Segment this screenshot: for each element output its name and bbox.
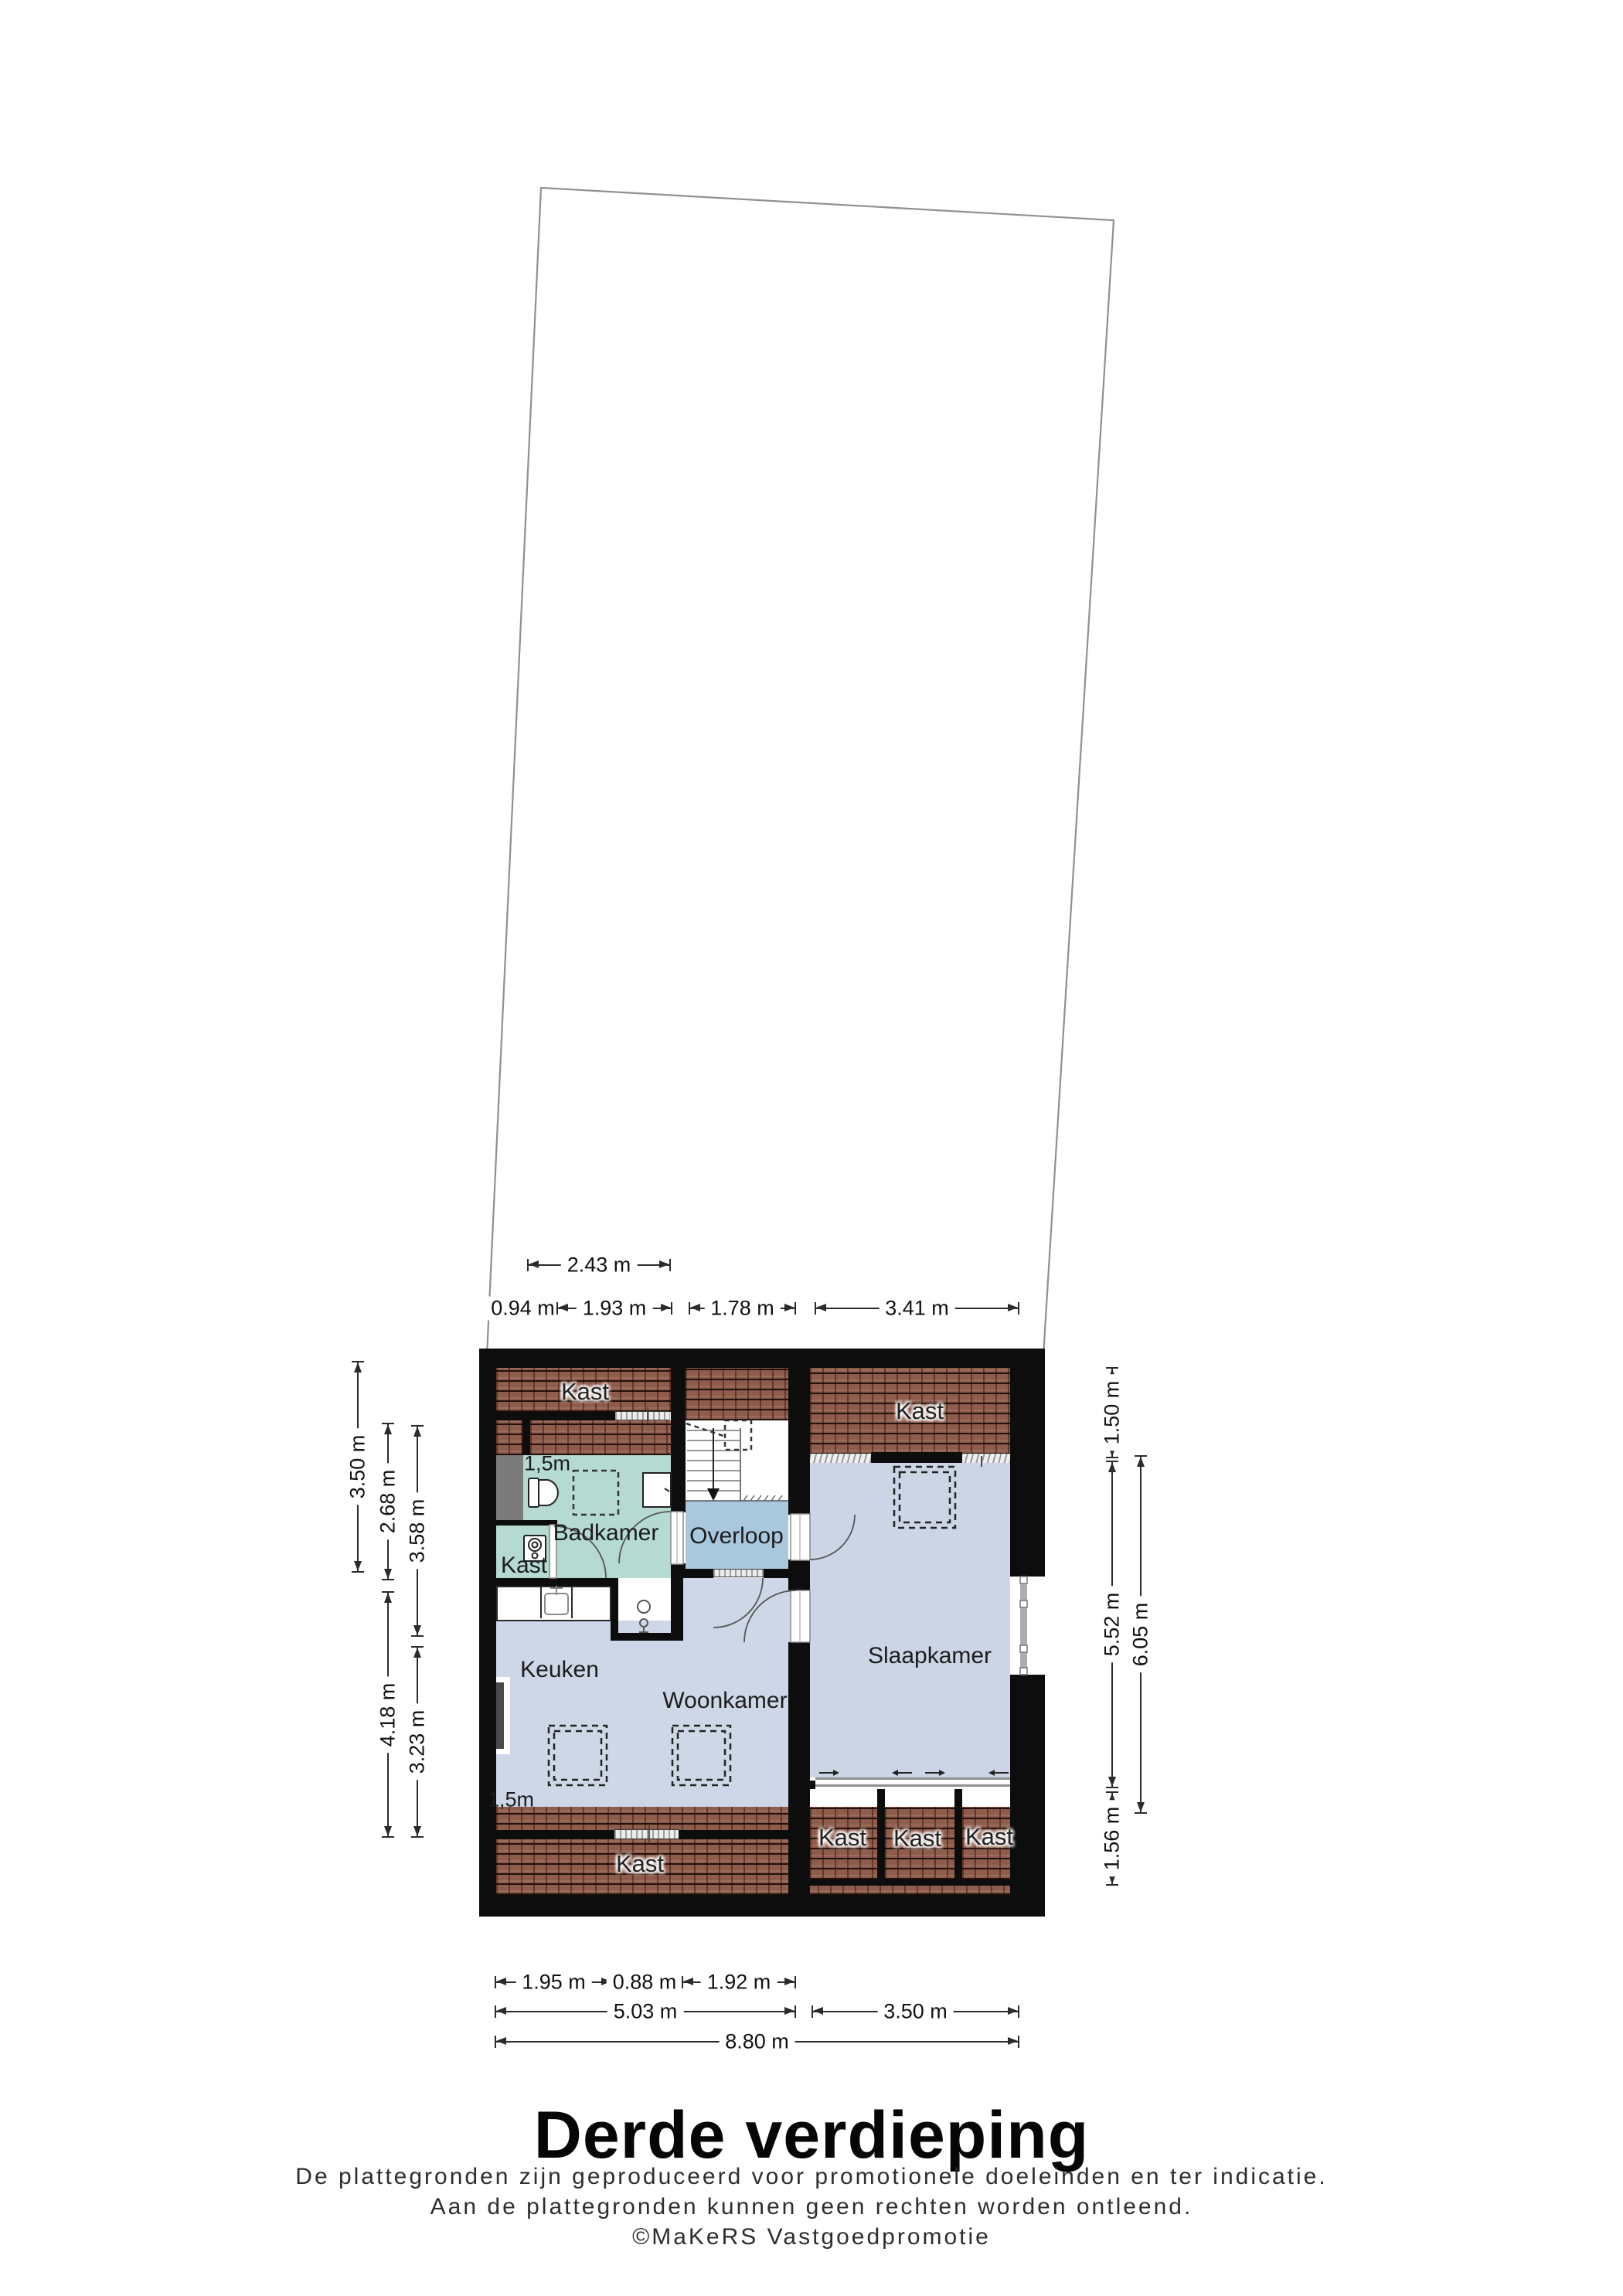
dim-top-193-a-r xyxy=(661,1304,671,1311)
dim-right-552-t-b xyxy=(1106,1787,1118,1788)
dim-bottom-880-a-r xyxy=(1008,2037,1018,2045)
dim-top-243-label: 2.43 m xyxy=(561,1253,638,1277)
dim-right-150: 1.50 m xyxy=(1111,1369,1113,1457)
dim-right-552-a-t xyxy=(1108,1462,1116,1472)
dim-right-552: 5.52 m xyxy=(1111,1462,1113,1787)
dim-bottom-880-t-r xyxy=(1018,2036,1019,2048)
dim-right-156-label: 1.56 m xyxy=(1101,1801,1125,1877)
dim-left-268-t-b xyxy=(382,1579,394,1580)
dim-bottom-503-a-r xyxy=(784,2007,794,2015)
dim-left-268: 2.68 m xyxy=(387,1424,389,1579)
dim-left-350-label: 3.50 m xyxy=(346,1429,370,1505)
dim-right-605: 6.05 m xyxy=(1140,1457,1142,1812)
disclaimer-line-1: De plattegronden zijn geproduceerd voor … xyxy=(0,2164,1623,2190)
dim-left-323-a-b xyxy=(413,1826,421,1836)
disclaimer-line-2: Aan de plattegronden kunnen geen rechten… xyxy=(0,2194,1623,2220)
dim-top-178-a-r xyxy=(784,1304,794,1311)
dim-top-178-a-l xyxy=(690,1304,700,1311)
dim-bottom-503-a-l xyxy=(496,2007,506,2015)
dim-top-178: 1.78 m xyxy=(690,1308,794,1309)
dim-bottom-503-label: 5.03 m xyxy=(607,2000,684,2024)
dim-top-341-t-r xyxy=(1018,1302,1019,1315)
dim-left-358: 3.58 m xyxy=(417,1427,418,1635)
dim-top-243-a-l xyxy=(529,1260,539,1268)
dim-bottom-880-label: 8.80 m xyxy=(719,2030,795,2054)
dim-top-341-a-r xyxy=(1008,1304,1018,1311)
dim-left-358-a-b xyxy=(413,1625,421,1635)
dim-bottom-350-t-r xyxy=(1018,2005,1019,2018)
dim-bottom-195: 1.95 m xyxy=(496,1981,611,1983)
dim-left-323: 3.23 m xyxy=(417,1648,418,1836)
dim-left-418-label: 4.18 m xyxy=(376,1676,400,1753)
dim-bottom-350-label: 3.50 m xyxy=(877,2000,954,2024)
dim-right-605-a-b xyxy=(1137,1802,1145,1812)
dim-bottom-088: 0.88 m xyxy=(618,1981,671,1983)
dim-bottom-880: 8.80 m xyxy=(496,2041,1018,2043)
dim-left-418-a-b xyxy=(384,1826,392,1836)
dim-left-323-t-b xyxy=(411,1836,424,1838)
dim-bottom-192-t-r xyxy=(794,1976,796,1988)
dim-bottom-192: 1.92 m xyxy=(683,1981,794,1983)
dim-left-358-a-t xyxy=(413,1427,421,1437)
dim-left-350-a-t xyxy=(354,1362,362,1372)
dim-top-178-t-r xyxy=(794,1302,796,1315)
dim-left-418-t-b xyxy=(382,1836,394,1838)
dim-top-341: 3.41 m xyxy=(816,1308,1018,1309)
dim-right-552-label: 5.52 m xyxy=(1101,1587,1125,1663)
dim-top-193-label: 1.93 m xyxy=(577,1297,653,1321)
dim-bottom-088-label: 0.88 m xyxy=(607,1971,683,1995)
dim-right-605-label: 6.05 m xyxy=(1129,1597,1153,1673)
dim-right-605-a-t xyxy=(1137,1457,1145,1467)
dim-top-094-label: 0.94 m xyxy=(485,1297,561,1321)
dim-bottom-503: 5.03 m xyxy=(496,2011,794,2012)
dim-bottom-880-a-l xyxy=(496,2037,506,2045)
dim-bottom-350-a-l xyxy=(813,2007,823,2015)
dim-bottom-192-a-r xyxy=(784,1978,794,1985)
dim-bottom-192-a-l xyxy=(683,1978,693,1985)
dim-left-268-a-t xyxy=(384,1424,392,1434)
dim-right-552-a-b xyxy=(1108,1777,1116,1787)
dim-left-350-t-b xyxy=(352,1571,364,1573)
dim-bottom-195-a-l xyxy=(496,1978,506,1985)
dim-left-323-label: 3.23 m xyxy=(406,1704,430,1781)
dim-right-150-label: 1.50 m xyxy=(1101,1375,1125,1451)
dim-bottom-195-label: 1.95 m xyxy=(515,1971,592,1995)
dimensions-layer: 2.43 m0.94 m1.93 m1.78 m3.41 m1.95 m0.88… xyxy=(0,0,1623,2296)
dim-top-243-a-r xyxy=(659,1260,669,1268)
dim-top-193-t-r xyxy=(671,1302,672,1315)
dim-left-418-a-t xyxy=(384,1593,392,1603)
dim-left-350: 3.50 m xyxy=(357,1362,359,1571)
dim-left-268-a-b xyxy=(384,1569,392,1579)
dim-top-243: 2.43 m xyxy=(529,1264,669,1266)
dim-bottom-350: 3.50 m xyxy=(813,2011,1018,2012)
page-title: Derde verdieping xyxy=(0,2097,1623,2174)
dim-bottom-503-t-r xyxy=(794,2005,796,2018)
dim-top-341-label: 3.41 m xyxy=(879,1297,955,1321)
dim-left-350-a-b xyxy=(354,1561,362,1571)
dim-top-094: 0.94 m xyxy=(496,1308,550,1309)
dim-right-150-t-b xyxy=(1106,1457,1118,1458)
dim-left-323-a-t xyxy=(413,1648,421,1658)
dim-top-243-t-r xyxy=(669,1259,671,1271)
dim-top-341-a-l xyxy=(816,1304,826,1311)
dim-left-358-t-b xyxy=(411,1635,424,1637)
floorplan-page: KastKast1,5mBadkamerKastOverloopKeukenWo… xyxy=(0,0,1623,2296)
dim-left-268-label: 2.68 m xyxy=(376,1464,400,1540)
dim-right-605-t-b xyxy=(1135,1812,1147,1814)
dim-left-358-label: 3.58 m xyxy=(406,1493,430,1570)
dim-right-156-t-b xyxy=(1106,1884,1118,1886)
dim-right-156: 1.56 m xyxy=(1111,1793,1113,1884)
dim-bottom-350-a-r xyxy=(1008,2007,1018,2015)
dim-left-418: 4.18 m xyxy=(387,1593,389,1836)
dim-bottom-192-label: 1.92 m xyxy=(701,1971,777,1995)
disclaimer-line-3: ©MaKeRS Vastgoedpromotie xyxy=(0,2224,1623,2250)
dim-top-193-a-l xyxy=(558,1304,568,1311)
dim-top-193: 1.93 m xyxy=(558,1308,671,1309)
dim-top-178-label: 1.78 m xyxy=(704,1297,781,1321)
